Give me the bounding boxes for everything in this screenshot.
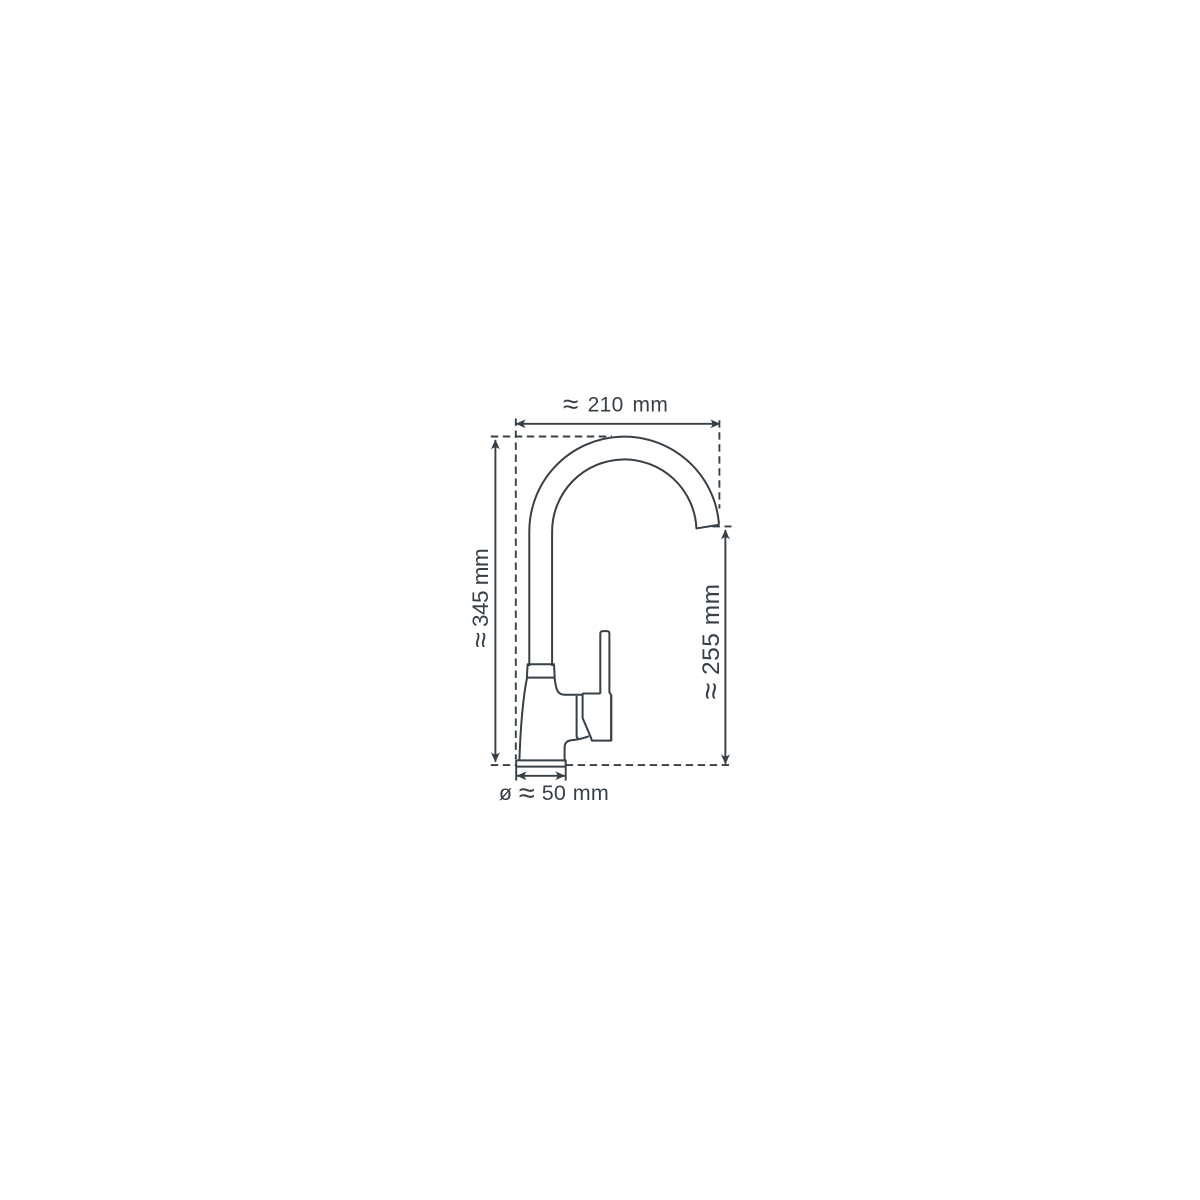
svg-text:≈ 255 mm: ≈ 255 mm [694,583,728,699]
svg-text:ø ≈ 50 mm: ø ≈ 50 mm [499,777,609,809]
svg-text:≈ 345 mm: ≈ 345 mm [465,549,497,648]
svg-text:≈ 210 mm: ≈ 210 mm [563,389,668,420]
